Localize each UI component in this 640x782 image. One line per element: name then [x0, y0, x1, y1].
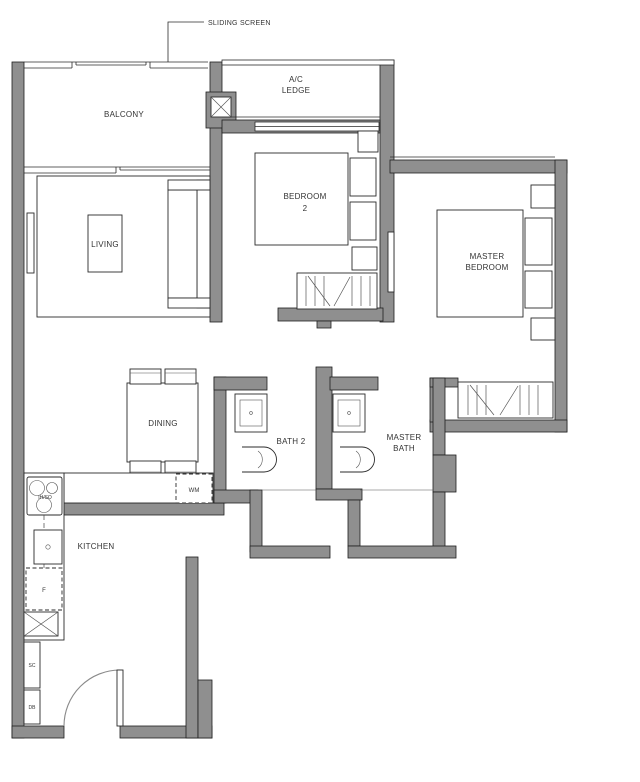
fixture-label-db: DB: [29, 705, 37, 711]
room-label-kitchen: KITCHEN: [78, 542, 115, 551]
sofa-seat: [168, 190, 197, 298]
master-bath-fixtures: [333, 394, 433, 490]
room-label-master-bedroom: MASTER: [470, 252, 505, 261]
bedside-table: [358, 131, 378, 152]
room-label-dining: DINING: [148, 419, 178, 428]
master-pillow: [525, 271, 552, 308]
master-pillow: [525, 218, 552, 265]
wall-doorstop-tab: [317, 321, 331, 328]
sliding-screen-label: SLIDING SCREEN: [208, 20, 271, 27]
room-label-master-bedroom: BEDROOM: [465, 263, 508, 272]
dining-chair: [130, 369, 161, 384]
room-label-ac-ledge: A/C: [289, 75, 303, 84]
toilet-bath2: [242, 447, 277, 472]
dining-chair: [165, 369, 196, 384]
ac-ledge-top-edge: [222, 60, 394, 65]
fixture-label-fridge: F: [42, 588, 46, 594]
wall-master-east: [555, 160, 567, 432]
bedside-table: [531, 318, 555, 340]
sofa-arm-bottom: [168, 298, 210, 308]
kitchen-sink: [34, 530, 62, 564]
room-label-bath2: BATH 2: [277, 437, 306, 446]
room-label-living: LIVING: [91, 240, 119, 249]
wall-kitchen-band: [64, 503, 224, 515]
wall-bath2-top: [214, 377, 267, 390]
wall-masterbath-top: [330, 377, 378, 390]
room-label-bedroom2: 2: [303, 204, 308, 213]
wall-foyer-east: [186, 557, 198, 738]
sliding-screen-leader-line: [168, 22, 204, 62]
wardrobe-bedroom2: [297, 273, 377, 309]
sofa-back: [197, 180, 210, 308]
wall-wardrobe-nook-bottom: [430, 420, 567, 432]
room-label-ac-ledge: LEDGE: [282, 86, 310, 95]
wall-master-shower-east: [433, 492, 445, 548]
master-bedroom-door-leaf: [388, 232, 394, 292]
counter-hatch-box: [24, 612, 58, 636]
wall-foyer-east-bump: [198, 680, 212, 738]
room-label-master-bath: BATH: [393, 444, 415, 453]
room-label-bedroom2: BEDROOM: [283, 192, 326, 201]
wall-bedroom2-south: [278, 308, 383, 321]
fixture-label-wm: WM: [189, 488, 200, 494]
wall-master-shower-west: [348, 500, 360, 546]
vent-box: [211, 97, 231, 117]
wall-masterbath-east-upper: [433, 378, 445, 455]
floor-plan-page: SLIDING SCREEN BALCONY A/C LEDGE LIVING …: [0, 0, 640, 782]
tv-console: [27, 213, 34, 273]
entrance-door-arc: [64, 670, 120, 726]
bedroom2-window: [255, 122, 379, 131]
bedside-table: [352, 247, 377, 270]
wall-master-top: [390, 160, 567, 173]
balcony-sliding-door: [24, 167, 210, 173]
bed2-pillow: [350, 158, 376, 196]
room-label-master-bath: MASTER: [387, 433, 422, 442]
wall-corridor-west: [214, 377, 226, 503]
wall-master-shower-bottom: [348, 546, 456, 558]
fixture-label-hob: IH/SO: [38, 495, 52, 501]
wall-masterbath-east-lower: [433, 455, 456, 492]
bedside-table: [531, 185, 555, 208]
wall-bottom-left: [12, 726, 64, 738]
bed2-pillow: [350, 202, 376, 240]
wall-bath2-shower-bottom: [250, 546, 330, 558]
room-label-balcony: BALCONY: [104, 110, 144, 119]
toilet-master: [340, 447, 375, 472]
wardrobe-master: [458, 382, 553, 418]
fixture-label-sc: SC: [29, 663, 36, 669]
wall-left-outer: [12, 62, 24, 738]
entrance-door-leaf: [117, 670, 123, 726]
wall-baths-connector: [316, 489, 362, 500]
floor-plan-drawing: SLIDING SCREEN BALCONY A/C LEDGE LIVING …: [0, 0, 640, 782]
wall-bath2-shower-west: [250, 490, 262, 552]
sofa-arm-top: [168, 180, 210, 190]
sliding-screen: [24, 62, 208, 68]
bedroom2-furniture: [255, 131, 378, 309]
